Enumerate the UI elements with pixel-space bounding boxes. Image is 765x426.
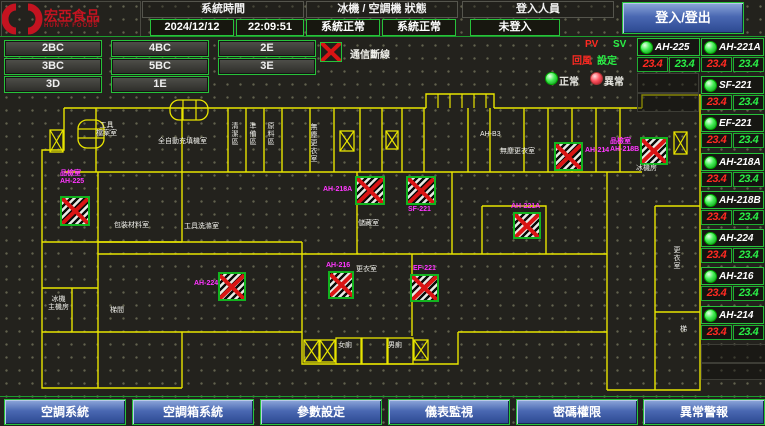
- unit-tag-label: SF-221: [408, 206, 431, 214]
- unit-sv-value: 23.4: [733, 325, 764, 340]
- footer-button-2[interactable]: 空調箱系統: [132, 399, 254, 425]
- room-label: 清潔區: [230, 122, 238, 146]
- room-label: 準備區: [248, 122, 256, 146]
- unit-tag-label: AH-221A: [511, 203, 540, 211]
- unit-values: 23.423.4: [701, 210, 764, 225]
- unit-led-icon: [704, 79, 717, 92]
- logo-text: 宏亞食品: [44, 10, 100, 23]
- ahu-status-value: 系統正常: [382, 19, 456, 36]
- room-label: 包裝材料室: [114, 222, 149, 230]
- unit-name-label: SF-221: [719, 80, 752, 91]
- unit-values: 23.423.4: [701, 133, 764, 148]
- unit-col_b-6[interactable]: AH-216: [701, 267, 764, 285]
- room-label: 女廁: [338, 342, 352, 350]
- unit-sv-value: 23.4: [733, 95, 764, 110]
- offline-unit-marker-AH-218A[interactable]: [355, 176, 385, 205]
- unit-values: 23.423.4: [701, 286, 764, 301]
- room-label: 梯間: [110, 307, 124, 315]
- unit-pv-value: 23.4: [701, 210, 732, 225]
- pv-header: PV: [585, 39, 598, 50]
- unit-values: 23.423.4: [701, 248, 764, 263]
- empty-slot: [701, 363, 765, 380]
- system-time-label: 系統時間: [142, 1, 304, 18]
- zone-button-4BC[interactable]: 4BC: [111, 40, 209, 57]
- unit-sv-value: 23.4: [733, 172, 764, 187]
- room-label: 梯: [680, 326, 687, 334]
- pv-desc-label: 回風: [572, 52, 592, 67]
- unit-led-icon: [704, 194, 717, 207]
- comm-broken-icon: [320, 42, 342, 62]
- room-label: AH-B3: [480, 131, 501, 139]
- unit-led-icon: [704, 309, 717, 322]
- unit-name-label: EF-221: [719, 118, 752, 129]
- system-date-value: 2024/12/12: [150, 19, 234, 36]
- empty-slot: [637, 73, 699, 93]
- offline-unit-marker-SF-221[interactable]: [406, 176, 436, 205]
- unit-tag-label: 品檢室 AH-218B: [610, 138, 639, 154]
- unit-pv-value: 23.4: [701, 133, 732, 148]
- offline-unit-marker-AH-218B[interactable]: [640, 137, 668, 165]
- room-label: 更衣室: [672, 246, 680, 270]
- zone-button-3D[interactable]: 3D: [4, 76, 102, 93]
- unit-name-label: AH-216: [719, 271, 753, 282]
- zone-button-3E[interactable]: 3E: [218, 58, 316, 75]
- zone-button-3BC[interactable]: 3BC: [4, 58, 102, 75]
- room-label: 冰機 主機房: [48, 296, 69, 312]
- unit-sv-value: 23.4: [733, 210, 764, 225]
- footer-divider: [0, 396, 765, 397]
- unit-tag-label: EF-221: [413, 265, 436, 273]
- offline-unit-marker-AH-225[interactable]: [60, 196, 90, 226]
- unit-name-label: AH-225: [655, 42, 689, 53]
- unit-pv-value: 23.4: [701, 172, 732, 187]
- room-label: 工具 檔案室: [96, 122, 117, 138]
- login-logout-button[interactable]: 登入/登出: [622, 2, 744, 34]
- zone-button-1E[interactable]: 1E: [111, 76, 209, 93]
- unit-tag-label: AH-216: [326, 262, 350, 270]
- room-label: 儲藏室: [358, 220, 379, 228]
- unit-pv-value: 23.4: [701, 95, 732, 110]
- room-label: 男廁: [388, 342, 402, 350]
- comm-broken-label: 通信斷線: [350, 46, 390, 61]
- zone-button-5BC[interactable]: 5BC: [111, 58, 209, 75]
- unit-tag-label: AH-218A: [323, 186, 352, 194]
- unit-col_b-3[interactable]: AH-218A: [701, 153, 764, 171]
- room-label: 工具洗滌室: [184, 223, 219, 231]
- unit-values: 23.423.4: [701, 57, 764, 72]
- unit-col_a-0[interactable]: AH-225: [637, 38, 700, 56]
- unit-pv-value: 23.4: [637, 57, 668, 72]
- abnormal-led-icon: [590, 72, 603, 85]
- empty-slot: [637, 93, 699, 112]
- normal-label: 正常: [559, 73, 579, 88]
- hmi-screen: 品檢室 AH-225AH-218ASF-221AH-214品檢室 AH-218B…: [0, 0, 765, 426]
- unit-col_b-0[interactable]: AH-221A: [701, 38, 764, 56]
- zone-button-2BC[interactable]: 2BC: [4, 40, 102, 57]
- empty-slot: [701, 344, 765, 363]
- unit-tag-label: AH-224: [194, 280, 218, 288]
- chiller-status-value: 系統正常: [306, 19, 380, 36]
- room-label: 更衣室: [356, 266, 377, 274]
- unit-name-label: AH-214: [719, 310, 753, 321]
- room-label: 冰機房: [636, 165, 657, 173]
- header-divider: [0, 36, 765, 37]
- unit-led-icon: [704, 156, 717, 169]
- unit-values: 23.423.4: [701, 325, 764, 340]
- unit-pv-value: 23.4: [701, 325, 732, 340]
- sv-header: SV: [613, 39, 626, 50]
- unit-sv-value: 23.4: [733, 57, 764, 72]
- login-person-label: 登入人員: [462, 1, 614, 18]
- offline-unit-marker-AH-221A[interactable]: [513, 212, 541, 239]
- company-logo: 宏亞食品 HUNYA FOODS: [1, 1, 141, 37]
- unit-col_b-7[interactable]: AH-214: [701, 306, 764, 324]
- unit-name-label: AH-224: [719, 233, 753, 244]
- normal-led-icon: [545, 72, 558, 85]
- unit-led-icon: [704, 41, 717, 54]
- system-time-value: 22:09:51: [236, 19, 304, 36]
- unit-sv-value: 23.4: [733, 286, 764, 301]
- unit-pv-value: 23.4: [701, 286, 732, 301]
- unit-led-icon: [704, 117, 717, 130]
- footer-button-5[interactable]: 密碼權限: [516, 399, 638, 425]
- unit-values: 23.423.4: [701, 95, 764, 110]
- chiller-status-label: 冰機 / 空調機 狀態: [306, 1, 458, 18]
- unit-name-label: AH-218A: [719, 157, 761, 168]
- sv-desc-label: 設定: [597, 52, 617, 67]
- unit-col_b-4[interactable]: AH-218B: [701, 191, 764, 209]
- unit-tag-label: 品檢室 AH-225: [60, 170, 84, 186]
- unit-led-icon: [704, 270, 717, 283]
- footer-button-3[interactable]: 參數設定: [260, 399, 382, 425]
- unit-col_b-2[interactable]: EF-221: [701, 114, 764, 132]
- unit-sv-value: 23.4: [733, 248, 764, 263]
- offline-unit-marker-AH-216[interactable]: [328, 271, 354, 299]
- footer-button-4[interactable]: 儀表監視: [388, 399, 510, 425]
- logo-icon: [2, 3, 44, 35]
- login-status-value: 未登入: [470, 19, 560, 36]
- room-label: 全自動充填機室: [158, 138, 207, 146]
- offline-unit-marker-AH-214[interactable]: [554, 142, 583, 171]
- offline-unit-marker-EF-221[interactable]: [410, 274, 439, 302]
- room-label: 原料區: [266, 122, 274, 146]
- footer-button-1[interactable]: 空調系統: [4, 399, 126, 425]
- unit-sv-value: 23.4: [733, 133, 764, 148]
- logo-subtext: HUNYA FOODS: [44, 23, 100, 29]
- unit-tag-label: AH-214: [585, 147, 609, 155]
- unit-values: 23.423.4: [637, 57, 700, 72]
- unit-col_b-1[interactable]: SF-221: [701, 76, 764, 94]
- unit-sv-value: 23.4: [669, 57, 700, 72]
- unit-col_b-5[interactable]: AH-224: [701, 229, 764, 247]
- offline-unit-marker-AH-224[interactable]: [218, 272, 246, 301]
- unit-name-label: AH-221A: [719, 42, 761, 53]
- unit-pv-value: 23.4: [701, 248, 732, 263]
- footer-button-6[interactable]: 異常警報: [643, 399, 765, 425]
- zone-button-2E[interactable]: 2E: [218, 40, 316, 57]
- unit-led-icon: [704, 232, 717, 245]
- unit-led-icon: [640, 41, 653, 54]
- room-label: 無塵更衣室: [500, 148, 535, 156]
- unit-pv-value: 23.4: [701, 57, 732, 72]
- room-label: 無塵更衣室: [309, 123, 317, 163]
- unit-name-label: AH-218B: [719, 195, 761, 206]
- abnormal-label: 異常: [604, 73, 624, 88]
- unit-values: 23.423.4: [701, 172, 764, 187]
